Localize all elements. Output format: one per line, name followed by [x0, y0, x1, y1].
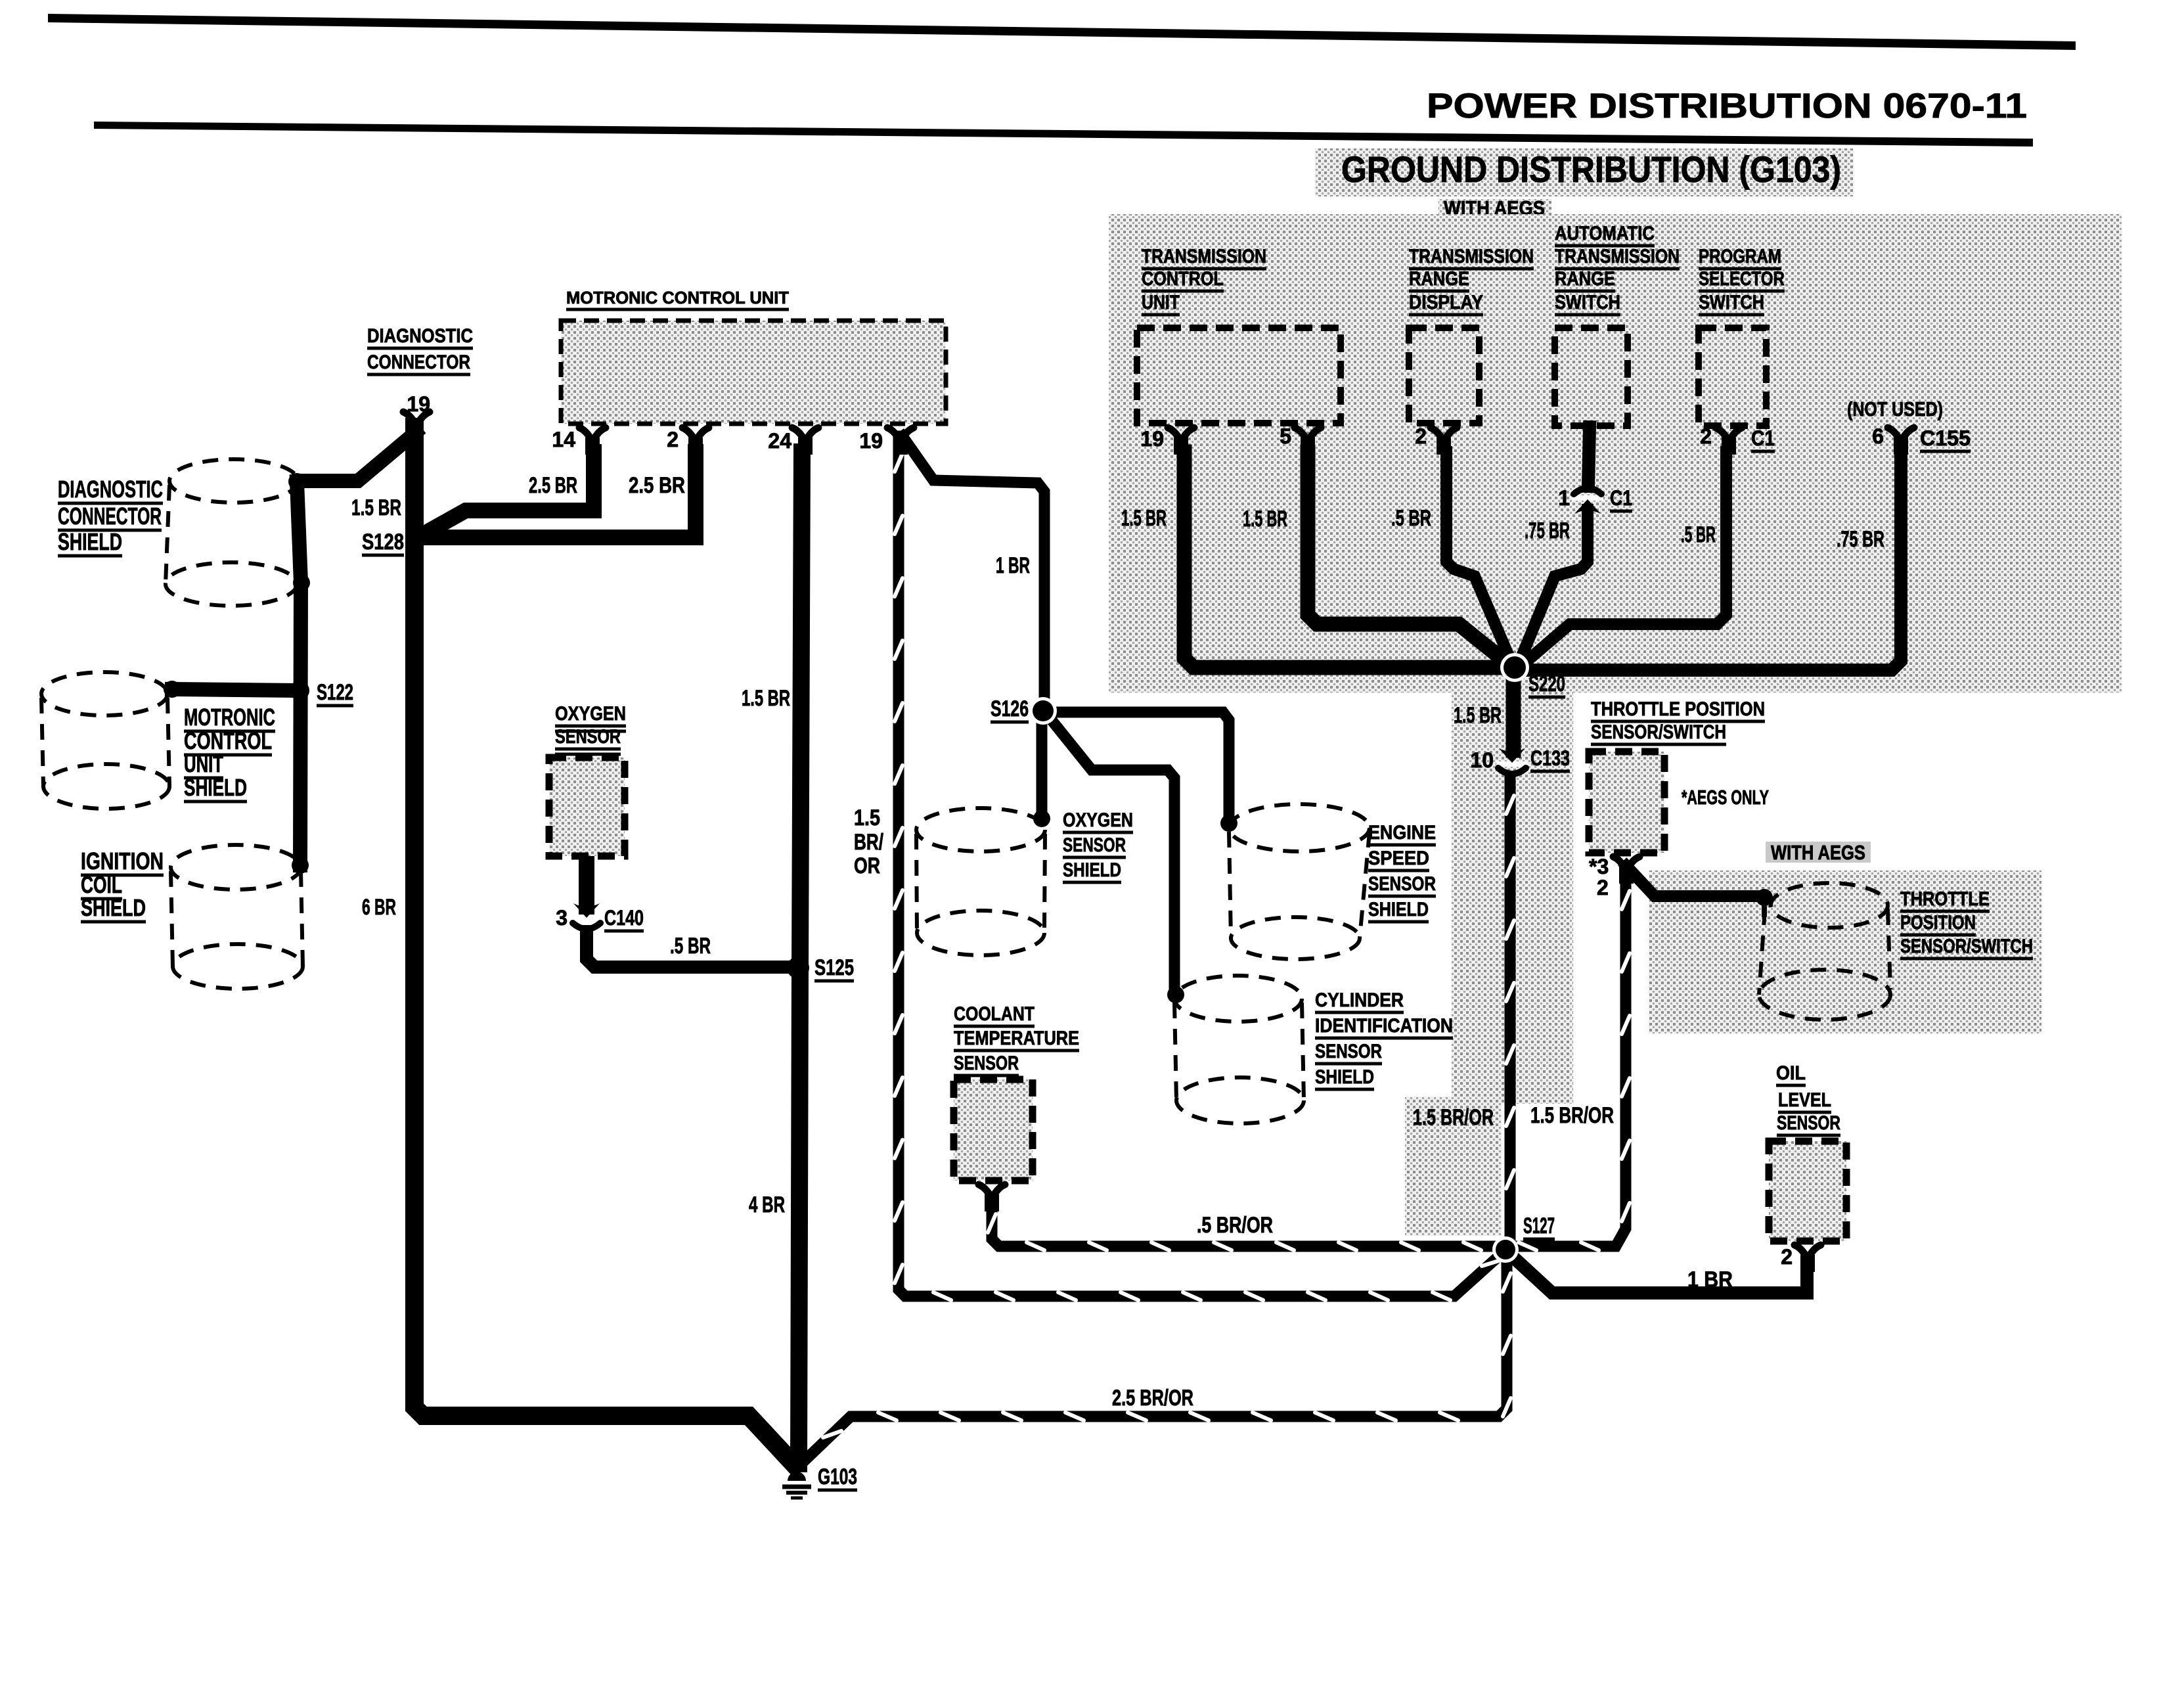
svg-text:14: 14 — [552, 428, 575, 451]
svg-text:S122: S122 — [317, 680, 353, 705]
svg-text:6: 6 — [1872, 424, 1884, 448]
svg-text:.75 BR: .75 BR — [1525, 518, 1570, 543]
svg-text:S125: S125 — [814, 955, 854, 980]
svg-text:SENSOR: SENSOR — [555, 726, 621, 748]
svg-text:IDENTIFICATION: IDENTIFICATION — [1315, 1015, 1453, 1037]
svg-text:1.5: 1.5 — [854, 805, 880, 830]
svg-text:WITH AEGS: WITH AEGS — [1771, 841, 1865, 864]
svg-text:SHIELD: SHIELD — [1063, 859, 1121, 881]
svg-text:SELECTOR: SELECTOR — [1699, 268, 1785, 290]
svg-text:CYLINDER: CYLINDER — [1315, 989, 1404, 1011]
svg-text:SENSOR: SENSOR — [1368, 873, 1436, 895]
svg-text:6 BR: 6 BR — [362, 895, 396, 920]
svg-text:.5 BR/OR: .5 BR/OR — [1197, 1213, 1273, 1238]
svg-text:GROUND DISTRIBUTION (G103): GROUND DISTRIBUTION (G103) — [1341, 148, 1841, 190]
svg-text:RANGE: RANGE — [1555, 268, 1615, 290]
svg-text:1.5 BR/OR: 1.5 BR/OR — [1530, 1103, 1614, 1128]
svg-text:THROTTLE: THROTTLE — [1900, 888, 1990, 910]
svg-text:CONNECTOR: CONNECTOR — [58, 503, 162, 530]
svg-text:10: 10 — [1470, 748, 1494, 772]
svg-text:DISPLAY: DISPLAY — [1409, 292, 1483, 313]
svg-text:2.5 BR/OR: 2.5 BR/OR — [1112, 1386, 1193, 1411]
svg-text:SPEED: SPEED — [1368, 848, 1429, 869]
svg-text:SHIELD: SHIELD — [1368, 899, 1429, 920]
svg-text:5: 5 — [1280, 424, 1291, 448]
svg-text:.75 BR: .75 BR — [1837, 527, 1884, 552]
svg-text:1 BR: 1 BR — [996, 553, 1030, 578]
svg-text:24: 24 — [768, 429, 791, 453]
svg-text:19: 19 — [1140, 427, 1164, 451]
svg-text:AUTOMATIC: AUTOMATIC — [1555, 223, 1655, 244]
svg-text:SHIELD: SHIELD — [58, 528, 122, 555]
svg-text:*AEGS ONLY: *AEGS ONLY — [1682, 786, 1769, 809]
svg-text:DIAGNOSTIC: DIAGNOSTIC — [58, 476, 163, 503]
svg-text:4 BR: 4 BR — [749, 1192, 785, 1217]
svg-text:SWITCH: SWITCH — [1699, 292, 1764, 313]
svg-text:POSITION: POSITION — [1900, 912, 1976, 934]
svg-text:19: 19 — [859, 429, 883, 453]
svg-text:1 BR: 1 BR — [1687, 1267, 1733, 1292]
svg-text:BR/: BR/ — [854, 830, 883, 855]
svg-text:CONNECTOR: CONNECTOR — [367, 351, 470, 373]
svg-text:TRANSMISSION: TRANSMISSION — [1555, 246, 1680, 267]
svg-text:PROGRAM: PROGRAM — [1699, 246, 1781, 267]
svg-text:1.5 BR: 1.5 BR — [351, 495, 401, 520]
svg-text:S127: S127 — [1523, 1213, 1555, 1238]
svg-text:SENSOR: SENSOR — [1063, 834, 1126, 856]
svg-text:POWER DISTRIBUTION 0670-11: POWER DISTRIBUTION 0670-11 — [1427, 87, 2027, 125]
svg-text:DIAGNOSTIC: DIAGNOSTIC — [367, 325, 473, 347]
svg-text:S128: S128 — [362, 530, 404, 554]
svg-text:2.5 BR: 2.5 BR — [629, 473, 685, 498]
svg-text:1.5 BR: 1.5 BR — [1454, 703, 1502, 728]
svg-text:.5 BR: .5 BR — [670, 934, 711, 959]
svg-text:SHIELD: SHIELD — [1315, 1066, 1374, 1088]
svg-text:1.5 BR: 1.5 BR — [1243, 507, 1287, 532]
svg-text:SENSOR: SENSOR — [954, 1052, 1019, 1074]
svg-text:2: 2 — [1415, 424, 1427, 448]
svg-text:THROTTLE POSITION: THROTTLE POSITION — [1591, 698, 1765, 720]
svg-text:OR: OR — [854, 853, 880, 878]
svg-text:CONTROL: CONTROL — [1142, 268, 1224, 290]
svg-text:C140: C140 — [604, 906, 644, 930]
svg-text:C133: C133 — [1530, 746, 1570, 770]
svg-text:.5 BR: .5 BR — [1681, 522, 1716, 547]
svg-text:TRANSMISSION: TRANSMISSION — [1142, 246, 1266, 267]
svg-text:UNIT: UNIT — [1142, 292, 1180, 313]
svg-text:.5 BR: .5 BR — [1391, 506, 1431, 531]
svg-text:MOTRONIC CONTROL UNIT: MOTRONIC CONTROL UNIT — [566, 288, 789, 307]
svg-text:1: 1 — [1558, 486, 1570, 510]
svg-text:OIL: OIL — [1776, 1062, 1806, 1084]
svg-text:2: 2 — [667, 428, 679, 451]
svg-text:SWITCH: SWITCH — [1555, 292, 1620, 313]
svg-text:LEVEL: LEVEL — [1778, 1089, 1831, 1111]
svg-text:IGNITION: IGNITION — [81, 848, 164, 874]
svg-text:SENSOR/SWITCH: SENSOR/SWITCH — [1900, 936, 2033, 957]
svg-text:*3: *3 — [1589, 855, 1609, 878]
svg-text:SENSOR: SENSOR — [1777, 1112, 1840, 1134]
svg-text:1.5 BR: 1.5 BR — [742, 686, 790, 711]
svg-text:SHIELD: SHIELD — [184, 774, 247, 801]
svg-text:MOTRONIC: MOTRONIC — [184, 704, 275, 731]
svg-text:C155: C155 — [1920, 426, 1971, 450]
svg-text:(NOT USED): (NOT USED) — [1847, 397, 1943, 420]
svg-text:UNIT: UNIT — [184, 750, 223, 777]
svg-text:ENGINE: ENGINE — [1368, 822, 1436, 844]
svg-text:1.5 BR/OR: 1.5 BR/OR — [1413, 1105, 1494, 1130]
svg-text:S220: S220 — [1528, 671, 1565, 696]
svg-text:2: 2 — [1781, 1245, 1793, 1269]
svg-text:2.5 BR: 2.5 BR — [529, 473, 577, 498]
svg-text:G103: G103 — [818, 1464, 857, 1489]
svg-text:1.5 BR: 1.5 BR — [1121, 506, 1167, 531]
svg-text:SHIELD: SHIELD — [81, 894, 146, 921]
svg-text:S126: S126 — [991, 696, 1029, 721]
svg-text:2: 2 — [1597, 876, 1609, 899]
svg-text:SENSOR: SENSOR — [1315, 1041, 1382, 1062]
svg-text:TEMPERATURE: TEMPERATURE — [954, 1028, 1079, 1049]
svg-text:C1: C1 — [1610, 486, 1632, 510]
svg-text:OXYGEN: OXYGEN — [555, 703, 626, 725]
svg-text:COOLANT: COOLANT — [954, 1003, 1035, 1025]
svg-text:RANGE: RANGE — [1409, 268, 1469, 290]
svg-text:TRANSMISSION: TRANSMISSION — [1409, 246, 1534, 267]
svg-text:C1: C1 — [1751, 426, 1775, 450]
svg-text:2: 2 — [1700, 424, 1712, 448]
svg-text:SENSOR/SWITCH: SENSOR/SWITCH — [1591, 721, 1726, 743]
svg-text:OXYGEN: OXYGEN — [1063, 809, 1133, 831]
svg-text:3: 3 — [556, 906, 568, 930]
